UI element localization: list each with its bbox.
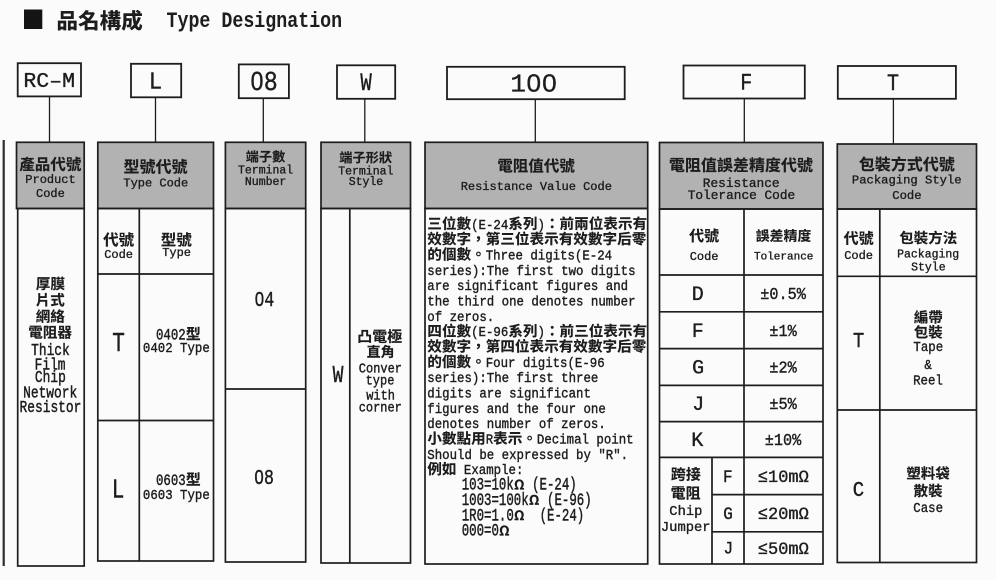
svg-text:0603 Type: 0603 Type: [143, 488, 210, 504]
svg-text:08: 08: [254, 466, 274, 491]
svg-text:Packaging Style: Packaging Style: [852, 174, 962, 188]
svg-text:(E-24: (E-24: [471, 217, 508, 233]
svg-text:L: L: [112, 476, 125, 506]
svg-text:000=0: 000=0: [462, 523, 499, 541]
svg-text:(E-96: (E-96: [471, 325, 508, 341]
svg-text:Three digits(E-24: Three digits(E-24: [486, 248, 613, 264]
svg-text:D: D: [692, 284, 704, 307]
svg-text:Style: Style: [349, 176, 384, 189]
svg-text:G: G: [692, 358, 704, 381]
svg-text:Code: Code: [36, 187, 65, 201]
svg-text:Type Code: Type Code: [123, 177, 188, 191]
svg-text:series):The first two digits: series):The first two digits: [427, 263, 635, 279]
svg-text:Type Designation: Type Designation: [167, 10, 343, 35]
svg-text:W: W: [360, 70, 372, 98]
svg-text:0402 Type: 0402 Type: [143, 341, 210, 357]
svg-text:G: G: [723, 505, 733, 525]
svg-text:): ): [538, 217, 545, 233]
svg-text:K: K: [691, 430, 703, 453]
svg-text:Number: Number: [245, 176, 286, 189]
svg-text:≤10mΩ: ≤10mΩ: [758, 468, 809, 488]
svg-text:(E-24): (E-24): [540, 508, 585, 526]
svg-text:F: F: [692, 321, 704, 344]
svg-text:≤20mΩ: ≤20mΩ: [758, 505, 809, 525]
svg-text:Code: Code: [104, 248, 133, 262]
svg-text:Resistor: Resistor: [20, 400, 82, 418]
svg-text:Reel: Reel: [913, 373, 943, 389]
svg-text:Should be expressed by "R".: Should be expressed by "R".: [427, 447, 628, 463]
svg-text:08: 08: [250, 69, 278, 99]
svg-text:±10%: ±10%: [765, 431, 802, 450]
svg-text:T: T: [887, 72, 899, 98]
svg-text:Tolerance: Tolerance: [754, 252, 813, 264]
svg-text:Tolerance Code: Tolerance Code: [688, 188, 796, 203]
svg-text:): ): [538, 325, 545, 341]
svg-text:±1%: ±1%: [769, 322, 797, 341]
svg-text:Code: Code: [892, 189, 921, 203]
svg-text:denotes number of zeros.: denotes number of zeros.: [427, 417, 605, 433]
svg-text:Four digits(E-96: Four digits(E-96: [486, 355, 605, 371]
svg-text:Chip: Chip: [669, 504, 702, 520]
svg-text:L: L: [149, 69, 162, 96]
svg-text:±2%: ±2%: [769, 359, 797, 378]
svg-text:type: type: [366, 373, 395, 389]
svg-text:series):The first three: series):The first three: [427, 371, 598, 387]
svg-text:T: T: [112, 330, 125, 360]
svg-text:figures and the four one: figures and the four one: [427, 401, 606, 417]
svg-text:the third one denotes number: the third one denotes number: [427, 294, 635, 310]
svg-text:Decimal point: Decimal point: [537, 432, 634, 448]
svg-text:of zeros.: of zeros.: [427, 309, 494, 325]
svg-text:Packaging: Packaging: [897, 249, 959, 262]
svg-text:corner: corner: [359, 400, 402, 416]
svg-text:C: C: [853, 478, 864, 502]
svg-text:Product: Product: [25, 173, 75, 187]
svg-text:F: F: [740, 71, 752, 97]
svg-text:Code: Code: [690, 250, 719, 264]
svg-text:J: J: [724, 540, 734, 560]
svg-text:R: R: [486, 432, 494, 448]
svg-text:Code: Code: [844, 249, 873, 263]
svg-text:Resistance Value Code: Resistance Value Code: [461, 180, 612, 194]
svg-text:&: &: [924, 357, 932, 373]
svg-text:are significant figures and: are significant figures and: [427, 279, 628, 295]
svg-text:Tape: Tape: [913, 339, 943, 355]
svg-text:Case: Case: [913, 500, 943, 516]
svg-text:F: F: [723, 468, 733, 488]
svg-text:Type: Type: [162, 246, 191, 260]
svg-text:±0.5%: ±0.5%: [760, 285, 806, 304]
svg-text:≤50mΩ: ≤50mΩ: [758, 539, 809, 559]
svg-text:J: J: [692, 394, 704, 417]
svg-text:±5%: ±5%: [769, 395, 797, 414]
svg-text:RC–M: RC–M: [23, 70, 75, 94]
svg-text:digits are significant: digits are significant: [427, 386, 591, 402]
svg-text:T: T: [853, 329, 864, 353]
svg-text:Style: Style: [911, 262, 946, 275]
svg-text:Jumper: Jumper: [661, 521, 711, 536]
svg-text:W: W: [333, 363, 344, 390]
svg-text:04: 04: [255, 288, 275, 313]
